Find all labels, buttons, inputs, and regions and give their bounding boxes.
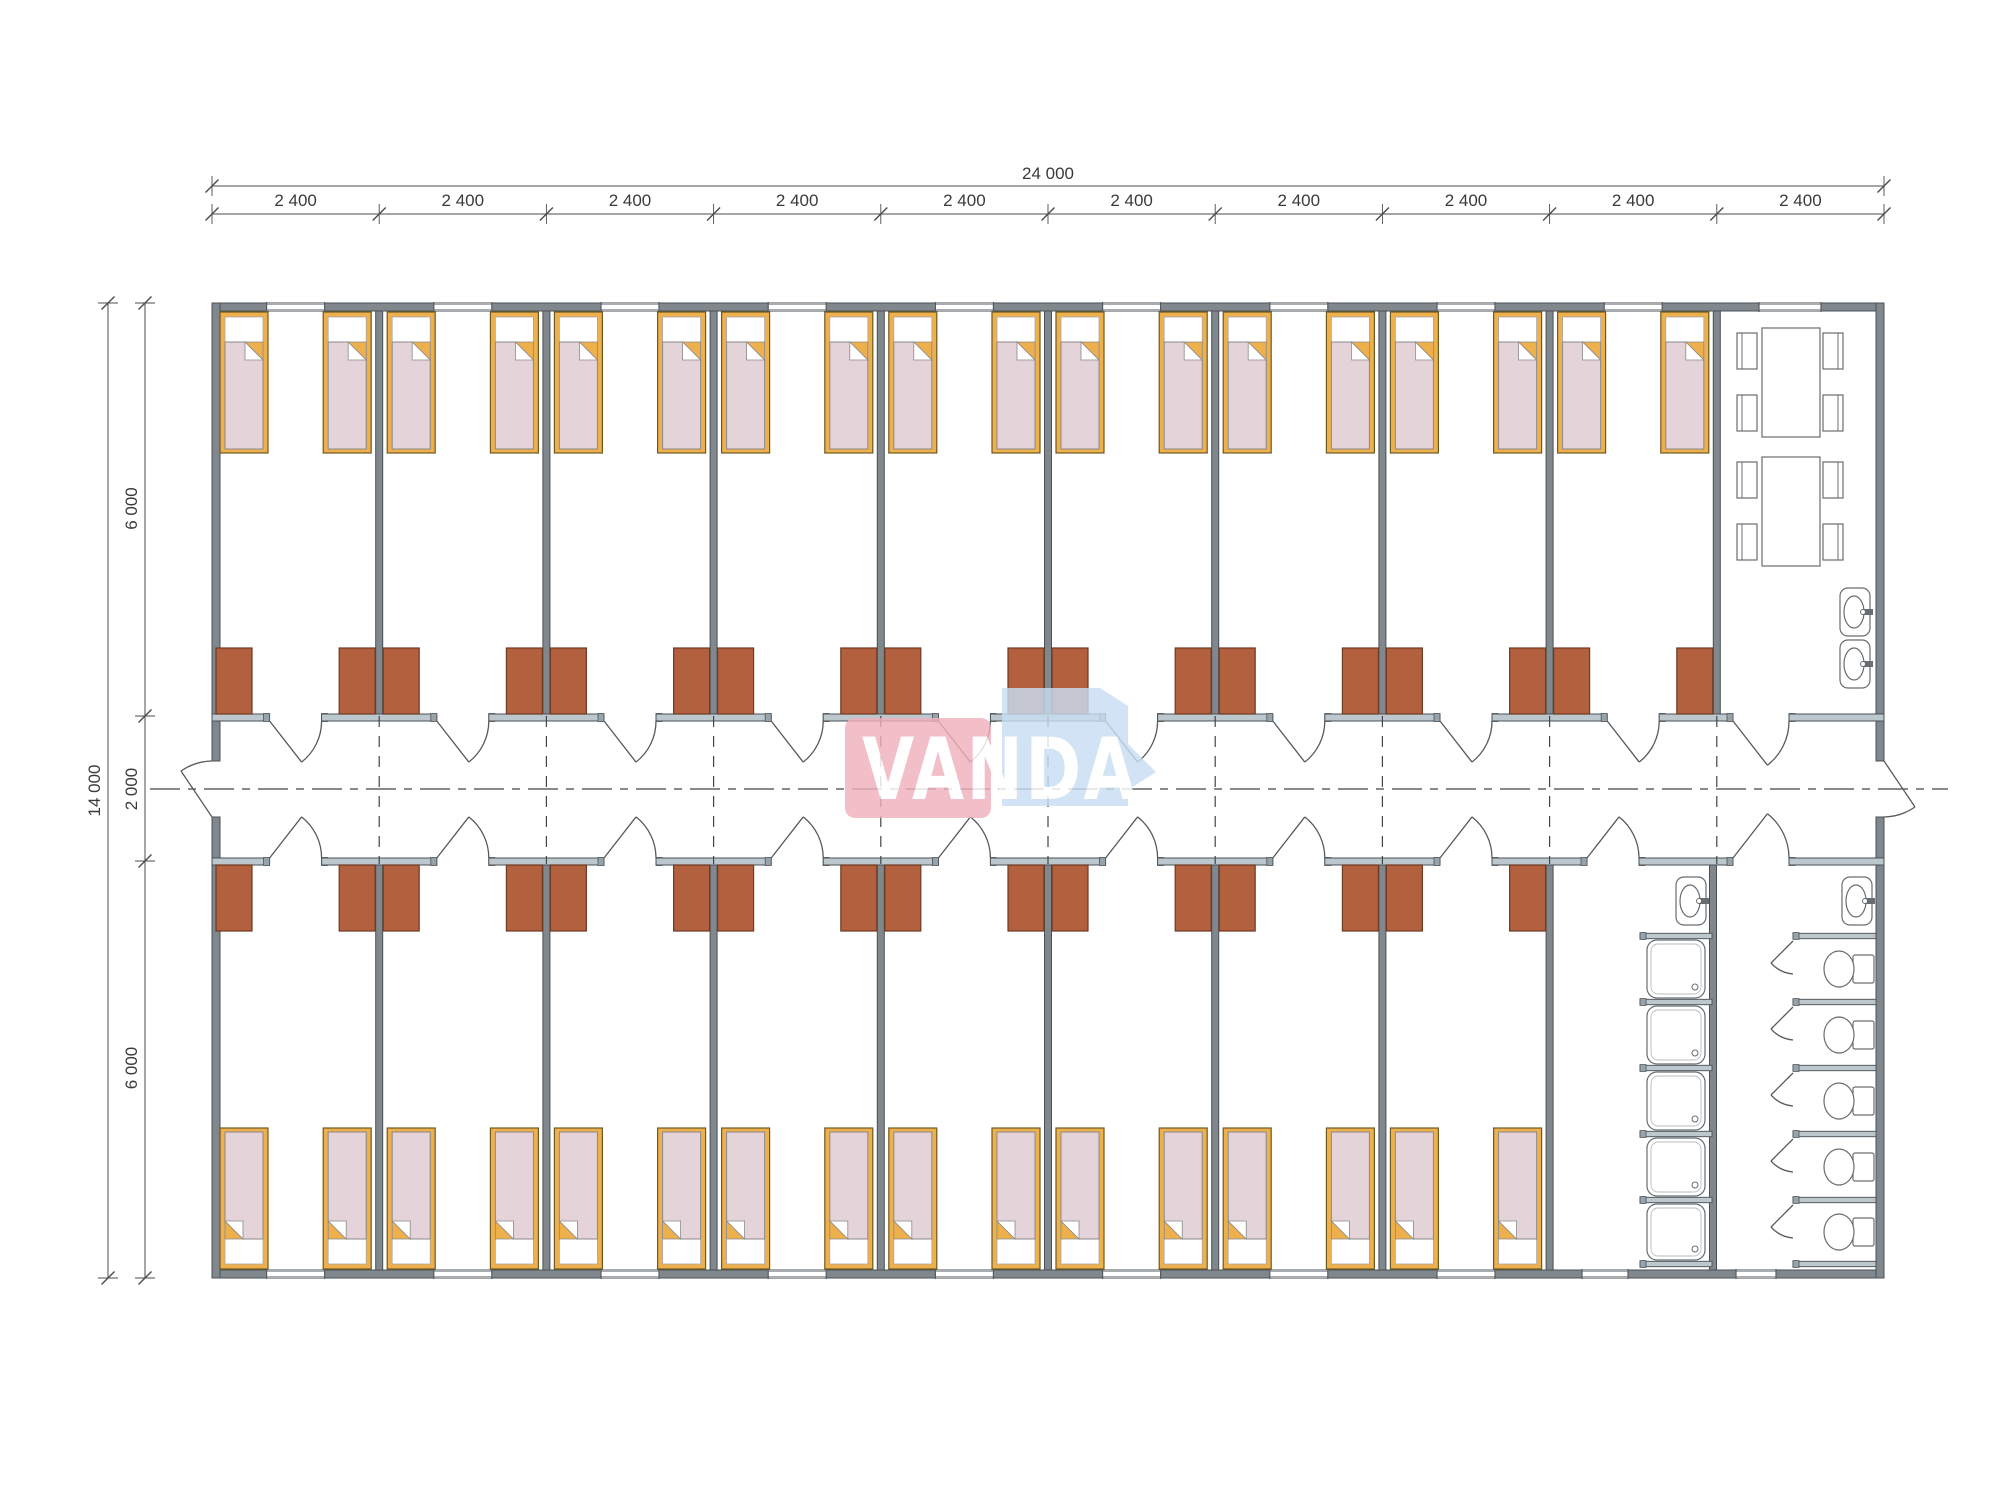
wall-end-cap [1267, 714, 1273, 722]
door-leaf [1884, 761, 1915, 807]
stall-door-leaf [1771, 1139, 1793, 1161]
bed-bottom-right [825, 1128, 873, 1269]
dimension-label: 2 400 [442, 191, 485, 210]
partition-wall-top [376, 311, 383, 714]
bed-bottom-left [1223, 1128, 1271, 1269]
stall-door-leaf [1771, 1073, 1793, 1095]
outer-wall-right [1876, 817, 1884, 1278]
bed-bottom-left [889, 1128, 937, 1269]
wardrobe-bottom [1008, 865, 1044, 931]
dimension-label: 2 400 [943, 191, 986, 210]
dining-table [1762, 328, 1820, 437]
wall-end-cap [1640, 999, 1646, 1006]
bed-top-left [1558, 312, 1606, 453]
wall-end-cap [1267, 858, 1273, 866]
stall-door-leaf [1771, 941, 1793, 963]
wardrobe-bottom [1386, 865, 1422, 931]
dining-table-group [1737, 457, 1843, 566]
door-swing [803, 721, 823, 762]
door-room-top [1607, 721, 1659, 762]
dimension-label: 2 400 [1278, 191, 1321, 210]
door-room-bottom [1273, 817, 1325, 858]
bed-top-left [889, 312, 937, 453]
toilet-tank [1853, 1153, 1874, 1181]
dimension-label: 2 400 [609, 191, 652, 210]
door-leaf [1733, 721, 1767, 765]
chair [1823, 462, 1843, 498]
door-room-bottom [437, 817, 489, 858]
fixtures-layer [1640, 328, 1876, 1267]
wardrobe-top [383, 648, 419, 714]
door-room-bottom [1106, 817, 1158, 858]
toilet-divider-wall [1793, 1065, 1876, 1070]
door-room-top [1273, 721, 1325, 762]
door-swing [1767, 721, 1789, 765]
wall-end-cap [1640, 1065, 1646, 1072]
partition-wall-bottom [1045, 865, 1052, 1270]
partition-wall-top [1713, 311, 1720, 714]
door-room-bottom [270, 817, 322, 858]
dimension-label: 2 400 [776, 191, 819, 210]
chair [1823, 395, 1843, 431]
door-room-bottom [1733, 814, 1789, 858]
sink-drain [1697, 899, 1702, 904]
door-leaf [181, 771, 212, 817]
bed-top-right [658, 312, 706, 453]
wardrobe-top [1510, 648, 1546, 714]
dimension-label: 2 400 [1612, 191, 1655, 210]
wall-end-cap [1581, 858, 1587, 866]
door-leaf [437, 817, 469, 858]
sink-drain [1863, 899, 1868, 904]
wardrobe-top [674, 648, 710, 714]
bed-top-left [220, 312, 268, 453]
door-room-top [1733, 721, 1789, 765]
door-swing [1305, 721, 1325, 762]
corridor-wall-south [1789, 858, 1884, 865]
toilet-tank [1853, 1087, 1874, 1115]
stall-door-swing [1771, 1161, 1793, 1172]
wardrobe-bottom [383, 865, 419, 931]
bed-top-right [1159, 312, 1207, 453]
toilet-divider-wall [1793, 1261, 1876, 1266]
bed-bottom-left [1056, 1128, 1104, 1269]
wardrobe-bottom [1510, 865, 1546, 931]
shower-stall [1647, 940, 1705, 998]
partition-wall-top [1546, 311, 1553, 714]
window-top [1270, 302, 1328, 312]
wall-end-cap [1601, 714, 1607, 722]
door-leaf [1440, 721, 1472, 762]
window-bottom [935, 1269, 993, 1279]
toilet-divider-wall [1793, 1131, 1876, 1136]
bed-top-right [1326, 312, 1374, 453]
bed-bottom-right [658, 1128, 706, 1269]
shower-divider-wall [1640, 1065, 1712, 1070]
shower-stall [1647, 1138, 1705, 1196]
shower-drain [1692, 1050, 1698, 1056]
wall-end-cap [1793, 1197, 1799, 1204]
dimension-label: 2 400 [274, 191, 317, 210]
toilet-divider-wall [1793, 999, 1876, 1004]
window-top [434, 302, 492, 312]
wardrobe-top [841, 648, 877, 714]
toilet-bowl [1824, 1149, 1854, 1185]
dimension-label: 6 000 [122, 1047, 141, 1090]
bed-bottom-left [554, 1128, 602, 1269]
partition-wall-top [1045, 311, 1052, 714]
partition-wall-bottom [1546, 865, 1553, 1270]
partition-wall-bottom [376, 865, 383, 1270]
shower-drain [1692, 1182, 1698, 1188]
door-leaf [1273, 721, 1305, 762]
shower-divider-wall [1640, 1131, 1712, 1136]
partition-wall-bottom [543, 865, 550, 1270]
stall-door-swing [1771, 1227, 1793, 1238]
window-top [768, 302, 826, 312]
door-swing [1639, 721, 1659, 762]
bed-bottom-right [1326, 1128, 1374, 1269]
corridor-wall-south [212, 858, 270, 865]
chair [1737, 395, 1757, 431]
wardrobe-bottom [1219, 865, 1255, 931]
corridor-wall-north [1789, 714, 1884, 721]
dimension-label: 2 400 [1779, 191, 1822, 210]
door-room-bottom [938, 817, 990, 858]
partition-wall-bottom [1212, 865, 1219, 1270]
door-leaf [1440, 817, 1472, 858]
dimension-label: 2 400 [1445, 191, 1488, 210]
wardrobe-top [1386, 648, 1422, 714]
bed-bottom-left [387, 1128, 435, 1269]
stall-door-swing [1771, 1095, 1793, 1106]
wardrobe-bottom [1052, 865, 1088, 931]
door-swing [302, 721, 322, 762]
outer-wall-right [1876, 303, 1884, 761]
wall-end-cap [431, 858, 437, 866]
dimension-label: 24 000 [1022, 164, 1074, 183]
wall-end-cap [765, 858, 771, 866]
bed-bottom-right [1159, 1128, 1207, 1269]
door-swing [469, 817, 489, 858]
toilet-tank [1853, 1218, 1874, 1246]
door-leaf [1587, 817, 1619, 858]
wardrobe-bottom [718, 865, 754, 931]
door-swing [1619, 817, 1639, 858]
wall-end-cap [1434, 714, 1440, 722]
shower-drain [1692, 984, 1698, 990]
wardrobe-top [506, 648, 542, 714]
bed-bottom-right [323, 1128, 371, 1269]
bed-top-left [1056, 312, 1104, 453]
bed-top-right [1494, 312, 1542, 453]
window-top [1103, 302, 1161, 312]
toilet-stall [1771, 1007, 1874, 1053]
toilet-stall [1771, 941, 1874, 987]
wall-end-cap [1100, 858, 1106, 866]
wardrobe-top [1342, 648, 1378, 714]
partition-wall-top [1212, 311, 1219, 714]
door-room-bottom [1587, 817, 1639, 858]
door-leaf [270, 817, 302, 858]
wall-end-cap [1640, 1261, 1646, 1268]
door-room-top [437, 721, 489, 762]
window-top [1437, 302, 1495, 312]
shower-stall [1647, 1204, 1705, 1260]
wall-end-cap [1793, 933, 1799, 940]
wardrobe-top [1554, 648, 1590, 714]
door-swing [1305, 817, 1325, 858]
chair [1737, 333, 1757, 369]
dimension-label: 2 000 [122, 768, 141, 811]
partition-wall-bottom [877, 865, 884, 1270]
wall-end-cap [765, 714, 771, 722]
partition-wall-top [710, 311, 717, 714]
sink-washroom [1676, 877, 1709, 925]
bed-bottom-left [1390, 1128, 1438, 1269]
wall-end-cap [1434, 858, 1440, 866]
wardrobe-top [718, 648, 754, 714]
wardrobe-top [339, 648, 375, 714]
window-bottom [601, 1269, 659, 1279]
bed-top-right [1661, 312, 1709, 453]
door-swing [1472, 721, 1492, 762]
door-leaf [771, 721, 803, 762]
wall-end-cap [1793, 1261, 1799, 1268]
door-leaf [1273, 817, 1305, 858]
bed-top-left [387, 312, 435, 453]
wall-end-cap [1640, 1131, 1646, 1138]
toilet-tank [1853, 955, 1874, 983]
corridor-wall-south [1639, 858, 1733, 865]
door-swing [1884, 807, 1915, 817]
wardrobe-bottom [841, 865, 877, 931]
wall-end-cap [1640, 1197, 1646, 1204]
dining-table [1762, 457, 1820, 566]
door-swing [636, 721, 656, 762]
door-room-top [270, 721, 322, 762]
toilet-bowl [1824, 1083, 1854, 1119]
dining-table-group [1737, 328, 1843, 437]
stall-door-leaf [1771, 1205, 1793, 1227]
door-swing [302, 817, 322, 858]
shower-stall [1647, 1006, 1705, 1064]
wardrobe-bottom [885, 865, 921, 931]
corridor-wall-south [1492, 858, 1587, 865]
wardrobe-top [550, 648, 586, 714]
shower-drain [1692, 1116, 1698, 1122]
wall-end-cap [932, 858, 938, 866]
stall-door-swing [1771, 1029, 1793, 1040]
wardrobe-bottom [216, 865, 252, 931]
sink-drain [1861, 662, 1866, 667]
bed-top-right [992, 312, 1040, 453]
door-leaf [437, 721, 469, 762]
wardrobe-top [216, 648, 252, 714]
dimension-label: 6 000 [122, 487, 141, 530]
watermark-text: VANDA [862, 720, 1138, 820]
wall-end-cap [431, 714, 437, 722]
window-bottom-washroom [1736, 1269, 1776, 1279]
chair [1823, 333, 1843, 369]
wardrobe-bottom [1342, 865, 1378, 931]
bed-bottom-right [490, 1128, 538, 1269]
wall-end-cap [598, 858, 604, 866]
toilet-divider-wall [1793, 933, 1876, 938]
window-bottom [768, 1269, 826, 1279]
floor-plan-svg: 24 0002 4002 4002 4002 4002 4002 4002 40… [0, 0, 2000, 1508]
wardrobe-bottom [1175, 865, 1211, 931]
window-bottom [1103, 1269, 1161, 1279]
door-leaf [1733, 814, 1767, 858]
stall-door-leaf [1771, 1007, 1793, 1029]
shower-divider-wall [1640, 933, 1712, 938]
door-leaf [1607, 721, 1639, 762]
wall-end-cap [1640, 933, 1646, 940]
toilet-bowl [1824, 951, 1854, 987]
door-room-bottom [771, 817, 823, 858]
sink-dining [1840, 588, 1873, 636]
wardrobe-top [1175, 648, 1211, 714]
chair [1737, 462, 1757, 498]
bed-top-left [722, 312, 770, 453]
window-bottom-washroom [1582, 1269, 1628, 1279]
wall-end-cap [1727, 714, 1733, 722]
door-room-top [771, 721, 823, 762]
door-leaf [771, 817, 803, 858]
bed-top-right [323, 312, 371, 453]
wall-end-cap [264, 858, 270, 866]
toilet-stall [1771, 1073, 1874, 1119]
door-room-bottom [604, 817, 656, 858]
wardrobe-bottom [674, 865, 710, 931]
corridor-wall-north [1659, 714, 1733, 721]
toilet-stall [1771, 1205, 1874, 1250]
door-swing [1138, 817, 1158, 858]
door-leaf [604, 817, 636, 858]
toilet-bowl [1824, 1017, 1854, 1053]
bed-top-right [825, 312, 873, 453]
wardrobe-bottom [550, 865, 586, 931]
door-swing [803, 817, 823, 858]
corridor-wall-north [212, 714, 270, 721]
door-swing [636, 817, 656, 858]
window-bottom [1270, 1269, 1328, 1279]
wall-end-cap [1793, 999, 1799, 1006]
chair [1823, 524, 1843, 560]
wall-end-cap [264, 714, 270, 722]
toilet-divider-wall [1793, 1197, 1876, 1202]
shower-divider-wall [1640, 1261, 1712, 1266]
door-room-top [1440, 721, 1492, 762]
door-swing [970, 817, 990, 858]
partition-wall-bottom [710, 865, 717, 1270]
window-top [267, 302, 325, 312]
door-room-bottom [1440, 817, 1492, 858]
bed-top-left [1223, 312, 1271, 453]
door-swing [1138, 721, 1158, 762]
window-bottom [1437, 1269, 1495, 1279]
wardrobe-top [885, 648, 921, 714]
toilet-bowl [1824, 1214, 1854, 1250]
bed-bottom-right [992, 1128, 1040, 1269]
shower-divider-wall [1640, 1197, 1712, 1202]
door-room-top [604, 721, 656, 762]
wall-end-cap [1727, 858, 1733, 866]
window-top-dining [1759, 302, 1821, 312]
partition-wall-top [543, 311, 550, 714]
door-swing [1767, 814, 1789, 858]
toilet-stall [1771, 1139, 1874, 1185]
door-leaf [604, 721, 636, 762]
chair [1737, 524, 1757, 560]
bed-top-right [490, 312, 538, 453]
partition-wall-top [877, 311, 884, 714]
sink-washroom [1842, 877, 1875, 925]
bed-bottom-left [722, 1128, 770, 1269]
wardrobe-bottom [339, 865, 375, 931]
bed-bottom-left [220, 1128, 268, 1269]
door-swing [1472, 817, 1492, 858]
door-swing [181, 761, 212, 771]
wardrobe-top [1677, 648, 1713, 714]
bed-top-left [1390, 312, 1438, 453]
door-swing [469, 721, 489, 762]
sink-dining [1840, 640, 1873, 688]
dimension-label: 14 000 [85, 765, 104, 817]
window-top [1604, 302, 1662, 312]
window-bottom [267, 1269, 325, 1279]
door-leaf [938, 817, 970, 858]
floor-plan-canvas: 24 0002 4002 4002 4002 4002 4002 4002 40… [0, 0, 2000, 1508]
wall-end-cap [1793, 1065, 1799, 1072]
window-bottom [434, 1269, 492, 1279]
shower-drain [1692, 1246, 1698, 1252]
wardrobe-bottom [506, 865, 542, 931]
window-top [601, 302, 659, 312]
toilet-tank [1853, 1021, 1874, 1049]
shower-stall [1647, 1072, 1705, 1130]
bed-top-left [554, 312, 602, 453]
wall-end-cap [598, 714, 604, 722]
wardrobe-top [1219, 648, 1255, 714]
sink-drain [1861, 610, 1866, 615]
partition-wall-bottom [1379, 865, 1386, 1270]
door-leaf [270, 721, 302, 762]
door-leaf [1106, 817, 1138, 858]
partition-wall-top [1379, 311, 1386, 714]
window-top [935, 302, 993, 312]
shower-divider-wall [1640, 999, 1712, 1004]
dimension-label: 2 400 [1110, 191, 1153, 210]
wall-end-cap [1793, 1131, 1799, 1138]
stall-door-swing [1771, 963, 1793, 974]
bed-bottom-right [1494, 1128, 1542, 1269]
